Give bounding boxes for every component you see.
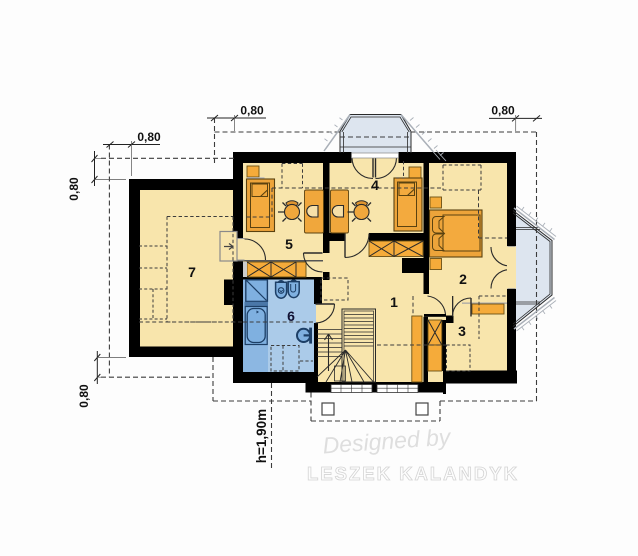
svg-text:h=1,90m: h=1,90m [254,409,269,463]
svg-text:4: 4 [371,177,379,193]
svg-text:6: 6 [287,308,295,324]
svg-text:2: 2 [459,271,467,287]
svg-text:0,80: 0,80 [137,130,161,144]
svg-text:0,80: 0,80 [240,104,264,118]
svg-text:0,80: 0,80 [77,384,91,408]
svg-text:3: 3 [458,323,466,339]
svg-text:LESZEK KALANDYK: LESZEK KALANDYK [307,463,519,484]
svg-text:0,80: 0,80 [67,177,81,201]
svg-text:1: 1 [390,294,398,310]
svg-text:7: 7 [188,264,196,280]
svg-text:5: 5 [285,236,293,252]
svg-text:0,80: 0,80 [491,104,515,118]
